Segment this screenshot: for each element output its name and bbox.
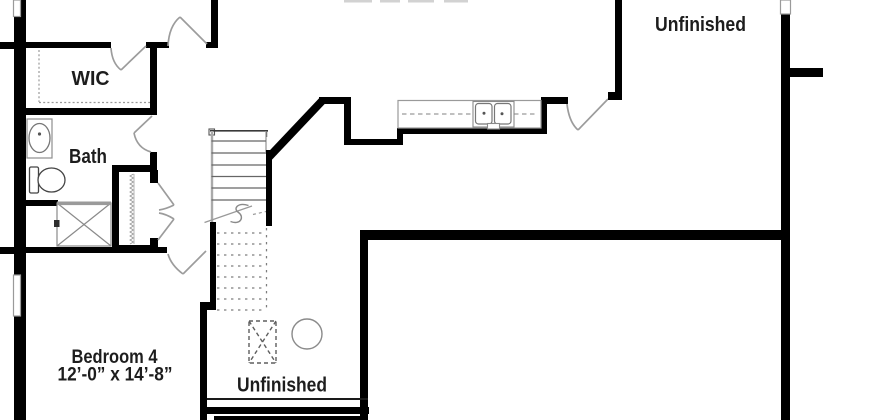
svg-text:WIC: WIC (72, 68, 110, 90)
svg-text:Unfinished: Unfinished (237, 375, 327, 397)
svg-text:12’-0” x 14’-8”: 12’-0” x 14’-8” (58, 364, 173, 386)
svg-text:Unfinished: Unfinished (655, 14, 746, 36)
svg-text:Bath: Bath (69, 146, 107, 168)
